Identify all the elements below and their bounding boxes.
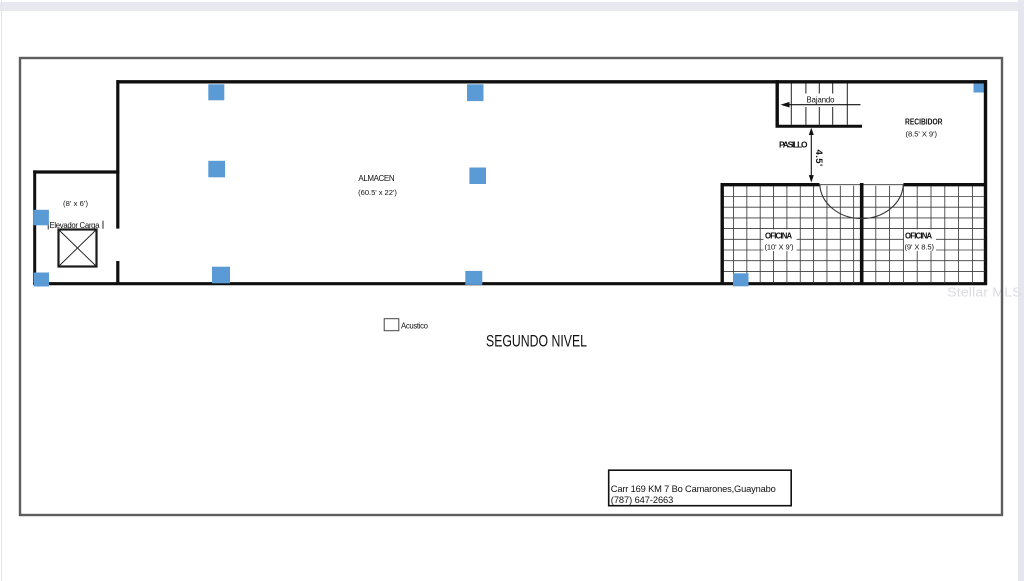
svg-text:SEGUNDO NIVEL: SEGUNDO NIVEL bbox=[486, 333, 587, 351]
svg-text:4.5': 4.5' bbox=[813, 150, 824, 167]
svg-text:ALMACEN: ALMACEN bbox=[358, 174, 394, 183]
svg-text:OFICINA: OFICINA bbox=[905, 232, 933, 241]
svg-text:Stellar MLS: Stellar MLS bbox=[947, 285, 1022, 300]
svg-text:Carr 169 KM 7 Bo Camarones,Gua: Carr 169 KM 7 Bo Camarones,Guaynabo bbox=[611, 484, 776, 494]
svg-text:PASILLO: PASILLO bbox=[779, 139, 808, 149]
svg-text:(8' x 6'): (8' x 6') bbox=[63, 199, 88, 208]
svg-text:RECIBIDOR: RECIBIDOR bbox=[905, 118, 943, 127]
svg-text:Bajando: Bajando bbox=[807, 95, 836, 104]
svg-text:(787) 647-2663: (787) 647-2663 bbox=[611, 495, 674, 505]
svg-text:(8.5' X 9'): (8.5' X 9') bbox=[906, 129, 938, 138]
svg-text:(9' X 8.5): (9' X 8.5) bbox=[905, 243, 935, 252]
svg-text:Acustico: Acustico bbox=[401, 321, 429, 330]
svg-text:(60.5' x 22'): (60.5' x 22') bbox=[358, 188, 397, 197]
svg-text:OFICINA: OFICINA bbox=[765, 232, 793, 241]
svg-text:(10' X 9'): (10' X 9') bbox=[765, 243, 794, 252]
